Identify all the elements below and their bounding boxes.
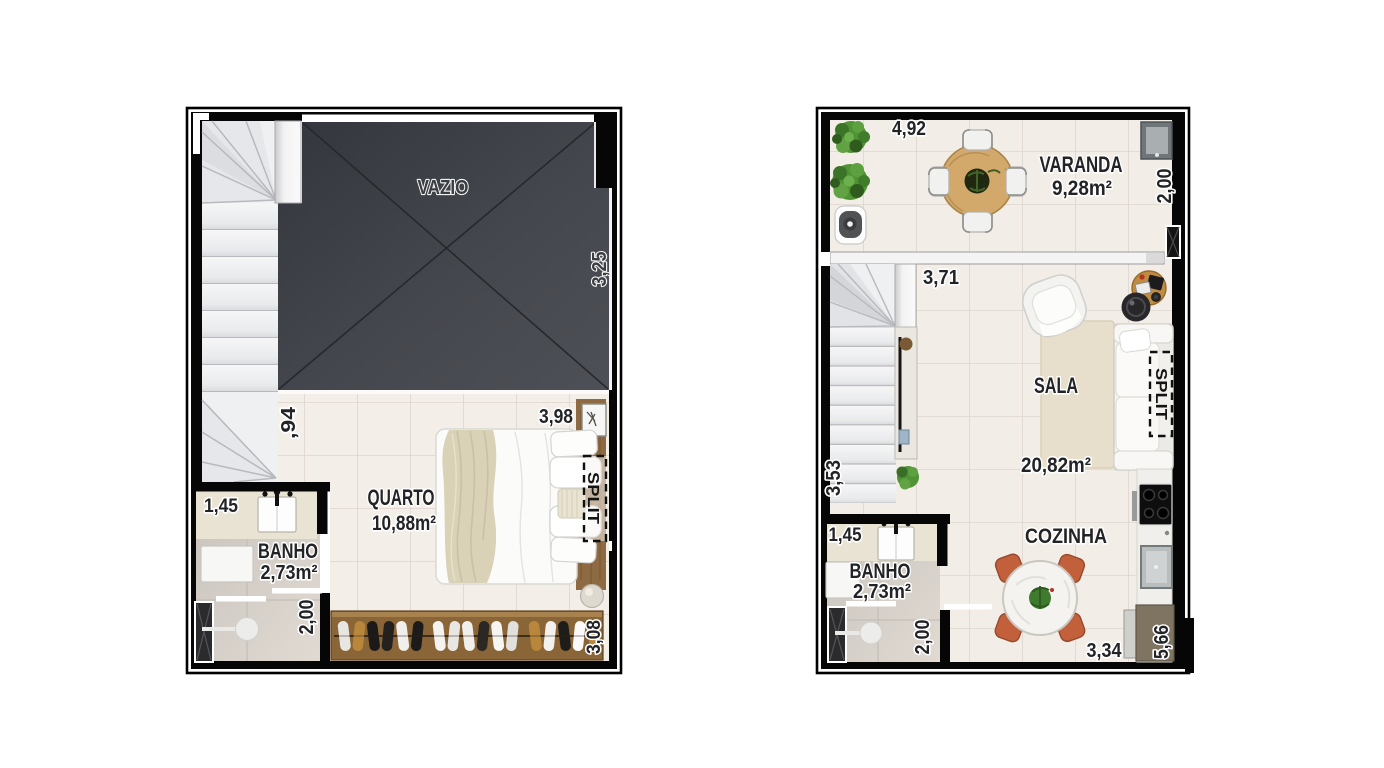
- svg-text:3,53: 3,53: [823, 460, 845, 496]
- svg-text:2,73m²: 2,73m²: [853, 581, 911, 603]
- svg-text:COZINHA: COZINHA: [1025, 525, 1107, 548]
- svg-text:3,98: 3,98: [539, 406, 573, 428]
- svg-text:VAZIO: VAZIO: [418, 177, 469, 199]
- svg-text:BANHO: BANHO: [850, 560, 911, 583]
- svg-text:3,25: 3,25: [589, 252, 611, 287]
- svg-text:3,34: 3,34: [1087, 640, 1123, 662]
- svg-text:QUARTO: QUARTO: [368, 485, 435, 510]
- svg-text:5,66: 5,66: [1151, 625, 1173, 659]
- svg-text:2,73m²: 2,73m²: [261, 562, 318, 584]
- svg-text:2,00: 2,00: [296, 600, 318, 635]
- svg-text:SALA: SALA: [1034, 373, 1078, 398]
- svg-text:BANHO: BANHO: [258, 540, 318, 563]
- svg-text:VARANDA: VARANDA: [1040, 152, 1123, 177]
- svg-text:1,45: 1,45: [829, 525, 862, 546]
- svg-text:SPLIT: SPLIT: [584, 472, 601, 524]
- svg-text:SPLIT: SPLIT: [1152, 368, 1169, 420]
- svg-text:9,28m²: 9,28m²: [1052, 177, 1112, 200]
- svg-text:4,92: 4,92: [892, 118, 926, 140]
- svg-text:20,82m²: 20,82m²: [1021, 454, 1091, 477]
- svg-text:10,88m²: 10,88m²: [372, 512, 436, 535]
- svg-text:2,00: 2,00: [912, 620, 934, 655]
- svg-text:3,71: 3,71: [923, 267, 959, 289]
- svg-text:3,08: 3,08: [584, 620, 605, 654]
- svg-text:1,45: 1,45: [204, 496, 238, 517]
- svg-text:2,00: 2,00: [1154, 169, 1176, 204]
- svg-text:,94: ,94: [278, 406, 300, 439]
